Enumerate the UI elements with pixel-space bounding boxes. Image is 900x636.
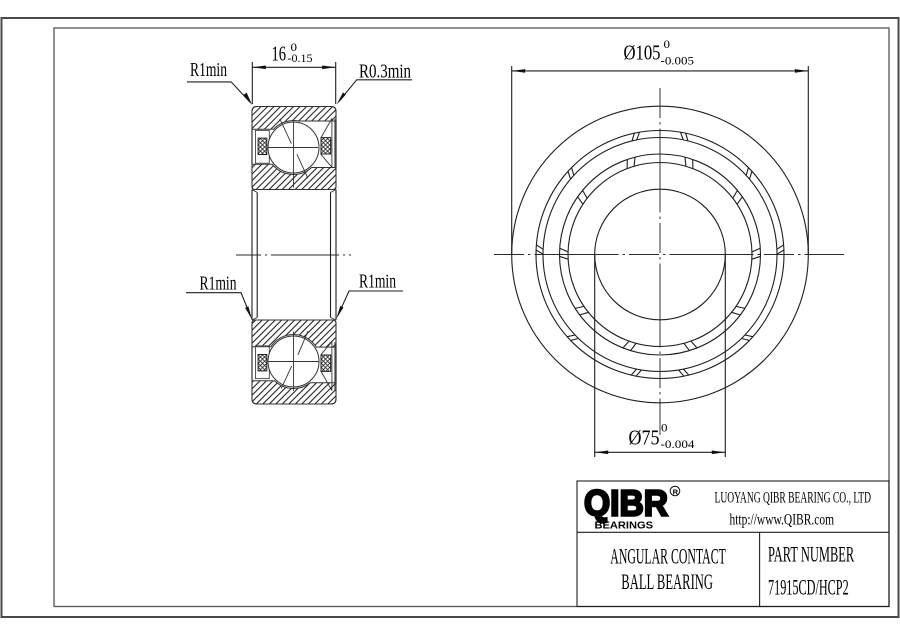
svg-text:71915CD/HCP2: 71915CD/HCP2 xyxy=(768,576,849,600)
svg-text:Ø105: Ø105 xyxy=(624,41,661,65)
svg-text:BEARINGS: BEARINGS xyxy=(595,521,654,532)
svg-text:R1min: R1min xyxy=(190,59,227,81)
svg-text:0: 0 xyxy=(661,421,668,435)
svg-text:R1min: R1min xyxy=(200,273,237,295)
svg-text:R: R xyxy=(673,487,679,496)
svg-text:ANGULAR CONTACT: ANGULAR CONTACT xyxy=(610,545,726,569)
svg-text:QIBR: QIBR xyxy=(584,483,668,524)
svg-text:http://www.QIBR.com: http://www.QIBR.com xyxy=(730,509,835,528)
svg-text:LUOYANG QIBR BEARING CO., LTD: LUOYANG QIBR BEARING CO., LTD xyxy=(715,487,872,506)
svg-text:16: 16 xyxy=(272,42,287,66)
svg-text:R1min: R1min xyxy=(359,271,396,293)
svg-text:0: 0 xyxy=(664,37,671,51)
svg-text:PART NUMBER: PART NUMBER xyxy=(768,543,854,567)
svg-text:BALL BEARING: BALL BEARING xyxy=(621,570,713,594)
svg-text:R0.3min: R0.3min xyxy=(359,61,411,83)
svg-text:-0.004: -0.004 xyxy=(661,437,695,451)
svg-text:-0.15: -0.15 xyxy=(288,51,313,65)
svg-text:-0.005: -0.005 xyxy=(661,54,695,68)
svg-text:Ø75: Ø75 xyxy=(629,426,660,450)
